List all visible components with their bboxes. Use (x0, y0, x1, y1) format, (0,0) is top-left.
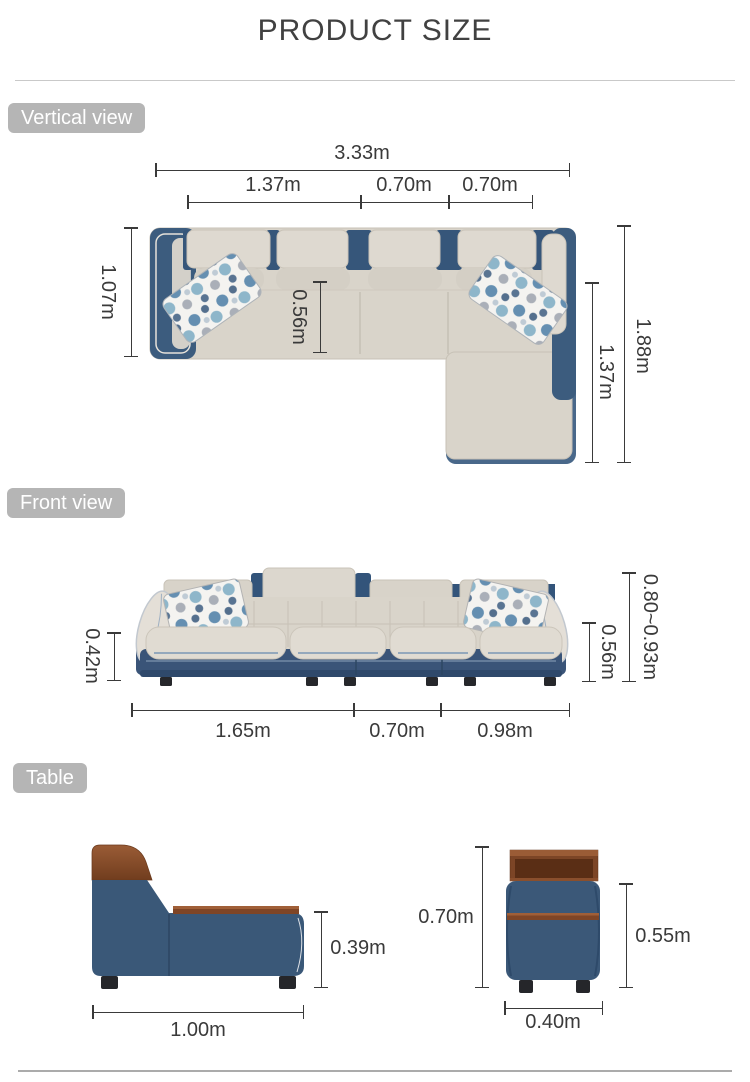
dim-label-side-length: 1.00m (158, 1019, 238, 1041)
vertical-view-badge: Vertical view (8, 103, 145, 133)
table-legs (101, 976, 296, 989)
dim-label-chaise-length: 1.37m (595, 332, 617, 412)
dim-label-armrest-height: 0.56m (597, 612, 619, 692)
dim-label-chaise-section-width: 0.98m (465, 720, 545, 742)
dim-line-back-height (622, 572, 636, 682)
dim-label-sofa-depth: 1.07m (97, 252, 119, 332)
top-divider (15, 80, 735, 81)
dim-line-seat-depth (313, 281, 327, 353)
table-body-side (92, 880, 304, 976)
dim-label-side-height: 0.39m (318, 937, 398, 959)
dim-label-body-height: 0.55m (623, 925, 703, 947)
table-legs (519, 980, 590, 993)
dim-label-middle-section-width: 0.70m (357, 720, 437, 742)
table-badge: Table (13, 763, 87, 793)
bottom-divider (18, 1070, 732, 1072)
table-body-front (506, 881, 600, 980)
seat-cushions (146, 627, 562, 659)
dim-line-total-depth (617, 225, 631, 463)
sofa-legs (160, 677, 556, 686)
dim-line-side-length (92, 1005, 304, 1019)
dim-line-front-widths (131, 703, 570, 717)
wood-armrest-highlight (173, 906, 299, 909)
wood-middle-highlight (507, 913, 599, 916)
dim-label-right-seat-width: 0.70m (450, 174, 530, 196)
table-side-view-drawing (85, 840, 315, 992)
dim-line-armrest-height (582, 622, 596, 682)
dim-label-total-width: 3.33m (322, 142, 402, 164)
dim-label-left-seat-width: 1.37m (233, 174, 313, 196)
dim-label-seat-depth: 0.56m (288, 277, 310, 357)
dim-line-seat-widths (187, 195, 533, 209)
page-title: PRODUCT SIZE (0, 14, 750, 48)
dim-label-total-height: 0.70m (406, 906, 486, 928)
wood-top-shelf (510, 850, 598, 881)
table-front-view-drawing (500, 842, 610, 994)
dim-line-sofa-depth (124, 227, 138, 357)
dim-label-table-width: 0.40m (513, 1011, 593, 1033)
sofa-top-view-drawing (148, 224, 578, 466)
dim-line-seat-height (107, 632, 121, 681)
front-view-badge: Front view (7, 488, 125, 518)
product-size-page: PRODUCT SIZE Vertical view (0, 0, 750, 1082)
wood-back-panel (92, 845, 152, 880)
dim-label-seat-height: 0.42m (81, 616, 103, 696)
sofa-front-view-drawing (130, 565, 572, 687)
dim-label-total-depth: 1.88m (632, 306, 654, 386)
dim-label-back-height: 0.80~0.93m (639, 572, 661, 682)
dim-label-left-section-width: 1.65m (203, 720, 283, 742)
dim-label-middle-seat-width: 0.70m (364, 174, 444, 196)
